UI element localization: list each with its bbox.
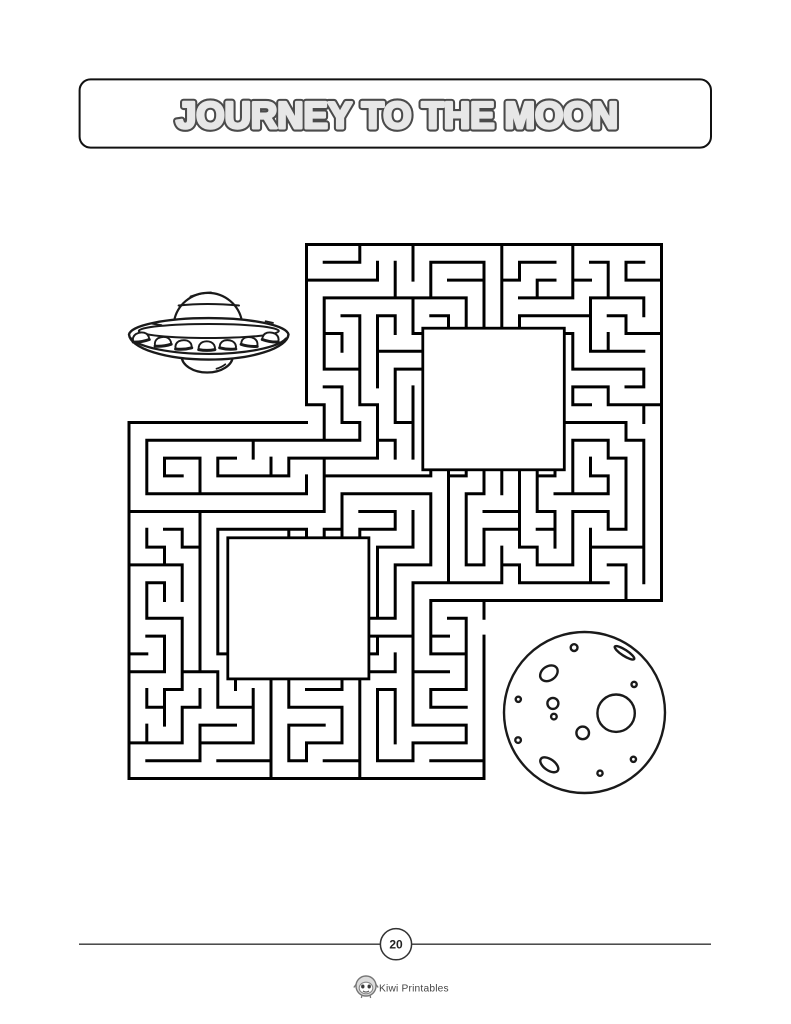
svg-text:20: 20 — [389, 938, 403, 952]
svg-text:JOURNEY TO THE MOON: JOURNEY TO THE MOON — [176, 95, 618, 136]
svg-text:Kiwi Printables: Kiwi Printables — [379, 984, 449, 995]
